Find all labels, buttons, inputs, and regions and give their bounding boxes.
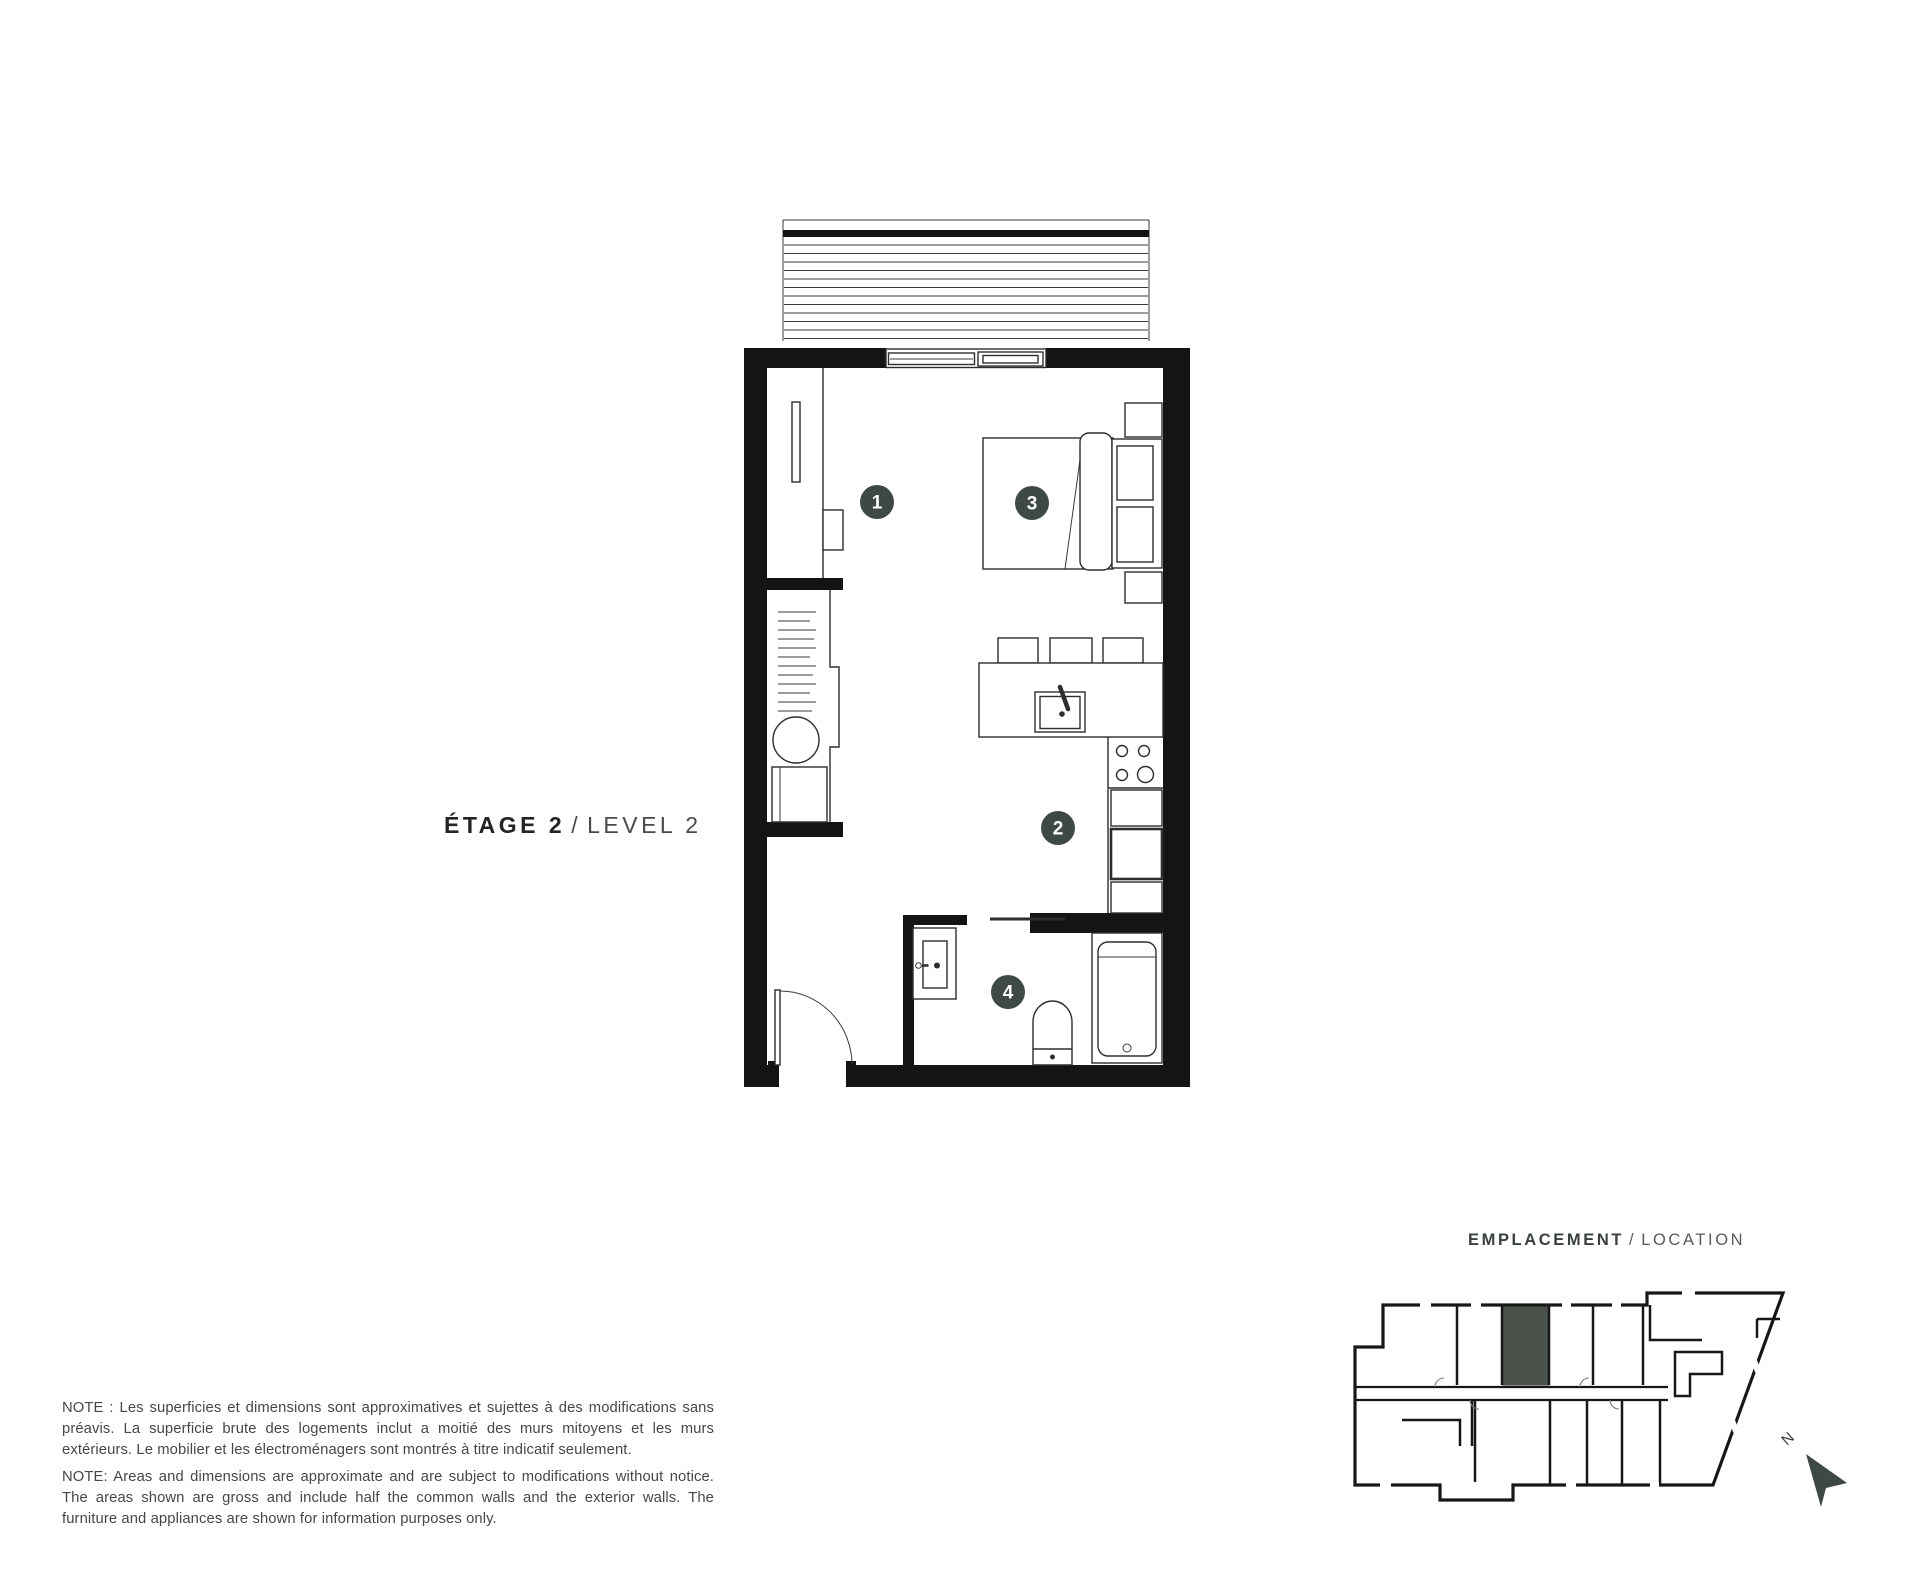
- floor-title: ÉTAGE 2/LEVEL 2: [444, 812, 702, 839]
- note-english: NOTE: Areas and dimensions are approxima…: [62, 1467, 714, 1531]
- balcony-deck-stripes: [784, 245, 1148, 339]
- window-gap: [1420, 1302, 1431, 1308]
- toilet-flush-button: [1050, 1055, 1055, 1060]
- counter-end-cabinet: [1111, 882, 1162, 913]
- burner-2: [1139, 746, 1150, 757]
- utility-closet: [772, 590, 839, 822]
- location-title-fr: EMPLACEMENT: [1468, 1231, 1624, 1249]
- floor-title-separator: /: [571, 812, 581, 838]
- bed-bolster-pillow: [1080, 433, 1112, 570]
- bed-pillow-bottom: [1117, 507, 1153, 562]
- north-arrow-icon: [1806, 1454, 1847, 1507]
- bed-pillow-top: [1117, 446, 1153, 500]
- marker-3-number: 3: [1027, 494, 1038, 515]
- building-key-plan: N: [1350, 1286, 1850, 1566]
- floor-title-fr: ÉTAGE 2: [444, 812, 565, 838]
- door-pane-right-inner: [983, 356, 1038, 364]
- corridor-walls: [1355, 1387, 1668, 1400]
- entry-closet: [792, 402, 843, 550]
- unit-floor-plan: 1 2 3 4: [720, 200, 1220, 1100]
- lower-unit-dividers: [1475, 1400, 1660, 1485]
- marker-4-number: 4: [1003, 983, 1014, 1004]
- counter-cabinet: [1111, 790, 1162, 826]
- sink-drain: [1059, 711, 1065, 717]
- window-gap: [1468, 1482, 1478, 1488]
- window-gap: [1682, 1290, 1695, 1296]
- utility-wall-bottom: [744, 822, 843, 837]
- entry-door-leaf: [775, 990, 780, 1065]
- vanity-drain: [934, 963, 940, 969]
- closet-shelf-box: [823, 510, 843, 550]
- floor-title-en: LEVEL 2: [587, 812, 701, 838]
- bed: [983, 403, 1162, 603]
- burner-1: [1117, 746, 1128, 757]
- floorplan-sheet: ÉTAGE 2/LEVEL 2: [0, 0, 1920, 1580]
- north-indicator: N: [1778, 1429, 1847, 1507]
- building-outline: [1355, 1293, 1783, 1500]
- balcony-edge-band: [783, 230, 1149, 237]
- lower-left-unit-walls: [1402, 1400, 1472, 1446]
- bath-wall-top-right: [1030, 913, 1163, 933]
- utility-door-line: [830, 590, 839, 822]
- bathroom: [913, 928, 1162, 1065]
- closet-mirror: [792, 402, 800, 482]
- window-gap: [1650, 1482, 1659, 1488]
- kitchen: [979, 638, 1163, 913]
- balcony-outline: [783, 220, 1149, 341]
- highlighted-unit: [1503, 1307, 1550, 1386]
- wall-bottom-right: [850, 1065, 1190, 1087]
- wall-right: [1163, 348, 1190, 1087]
- entry-door-swing: [780, 991, 852, 1065]
- stool-2: [1050, 638, 1092, 663]
- marker-1-number: 1: [872, 493, 883, 514]
- window-gap: [1566, 1482, 1576, 1488]
- stool-1: [998, 638, 1038, 663]
- window-gap: [1562, 1302, 1571, 1308]
- burner-3: [1117, 770, 1128, 781]
- location-title-en: LOCATION: [1641, 1231, 1745, 1249]
- balcony-sliding-door: [886, 349, 1046, 368]
- nightstand-bottom: [1125, 572, 1162, 603]
- north-label: N: [1778, 1429, 1797, 1449]
- note-french: NOTE : Les superficies et dimensions son…: [62, 1398, 714, 1462]
- burner-4: [1138, 767, 1154, 783]
- stool-3: [1103, 638, 1143, 663]
- wall-left: [744, 348, 767, 1087]
- utility-wall-top: [744, 578, 843, 590]
- water-heater: [773, 717, 819, 763]
- facade-window-gaps: [1380, 1290, 1761, 1488]
- marker-2-number: 2: [1053, 819, 1064, 840]
- entry-door: [775, 990, 852, 1065]
- building-interior-walls: [1355, 1305, 1780, 1485]
- location-title-separator: /: [1629, 1231, 1636, 1249]
- balcony: [783, 220, 1149, 341]
- window-gap: [1380, 1482, 1391, 1488]
- nightstand-top: [1125, 403, 1162, 437]
- window-gap: [1471, 1302, 1481, 1308]
- utility-shelf-hatch: [778, 612, 816, 711]
- upper-unit-dividers: [1457, 1305, 1643, 1385]
- building-perimeter: [1355, 1293, 1783, 1500]
- bathtub-inner: [1098, 942, 1156, 1056]
- fridge: [1111, 829, 1162, 879]
- location-title: EMPLACEMENT/LOCATION: [1468, 1231, 1745, 1250]
- window-gap: [1612, 1302, 1621, 1308]
- entry-jamb-right: [846, 1061, 856, 1087]
